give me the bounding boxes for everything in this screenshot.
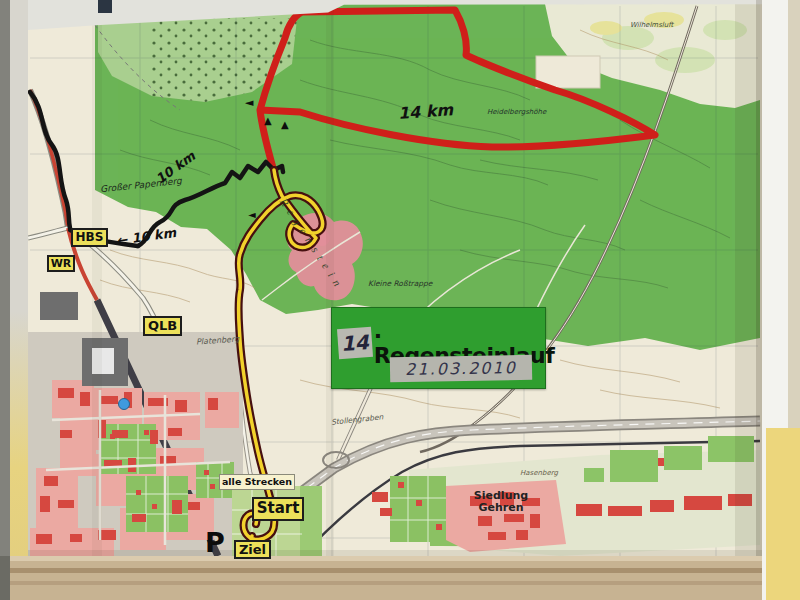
sign-alle-strecken: alle Strecken — [219, 474, 295, 490]
place-label-rosstrappe: Kleine Roßtrappe — [368, 279, 432, 288]
rolled-map-line2 — [10, 581, 762, 585]
wall-bottom-left-corner — [0, 556, 10, 600]
route-arrow-left-icon: ◄ — [245, 96, 253, 109]
place-label-heidelbergshoehe: Heidelbergshöhe — [487, 108, 546, 116]
route-arrow-left-icon: ◄ — [248, 209, 256, 220]
place-label-wilhelmsluft: Wilhelmsluft — [630, 21, 673, 29]
wall-left-edge — [0, 0, 10, 600]
parking-symbol: P — [205, 527, 225, 558]
sign-hbs: HBS — [71, 228, 108, 247]
route-arrow-up-icon: ▲ — [281, 119, 289, 130]
photo-of-course-map: Großer Papenberg Regenstein Kleine Roßtr… — [0, 0, 800, 600]
rolled-map-line1 — [10, 568, 762, 573]
event-date-tape: 21.03.2010 — [390, 355, 532, 382]
wall-left — [10, 0, 28, 600]
place-label-hasenberg: Hasenberg — [520, 469, 558, 477]
distance-label-14km: 14 km — [397, 100, 453, 123]
sign-wr: WR — [47, 255, 75, 272]
rolled-map-bottom — [10, 556, 762, 600]
sign-start: Start — [252, 497, 304, 521]
sign-ziel: Ziel — [234, 540, 271, 559]
route-arrow-up-icon: ▲ — [264, 115, 272, 126]
board-clip — [98, 0, 112, 13]
event-label: 14 . Regensteinlauf 21.03.2010 — [331, 307, 546, 389]
map-artwork — [0, 0, 800, 600]
wall-right-yellow — [766, 428, 800, 600]
place-label-siedlung-gehren: Siedlung Gehren — [462, 490, 540, 514]
sign-qlb: QLB — [143, 316, 182, 336]
rolled-map-highlight — [10, 556, 762, 561]
siedlung-line2: Gehren — [462, 502, 540, 514]
event-number-tape: 14 — [337, 327, 373, 359]
